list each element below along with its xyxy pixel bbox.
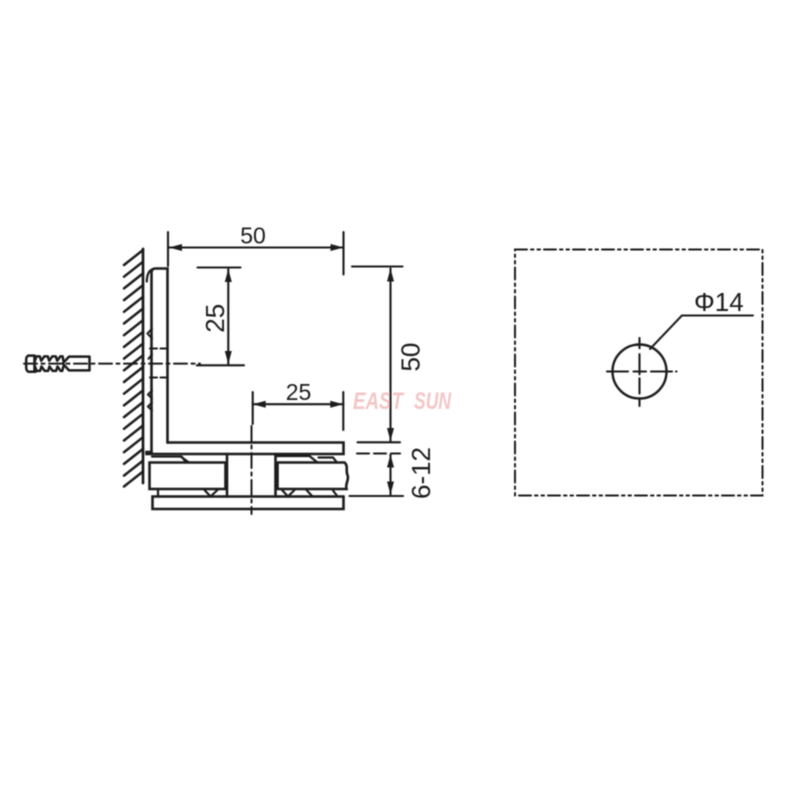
svg-text:6-12: 6-12	[406, 447, 436, 499]
svg-text:SUN: SUN	[414, 388, 451, 415]
svg-text:EAST: EAST	[353, 388, 405, 415]
svg-text:25: 25	[286, 379, 312, 405]
svg-text:25: 25	[200, 304, 230, 333]
svg-text:Φ14: Φ14	[694, 287, 744, 317]
svg-text:50: 50	[240, 223, 266, 249]
svg-text:50: 50	[395, 343, 425, 372]
